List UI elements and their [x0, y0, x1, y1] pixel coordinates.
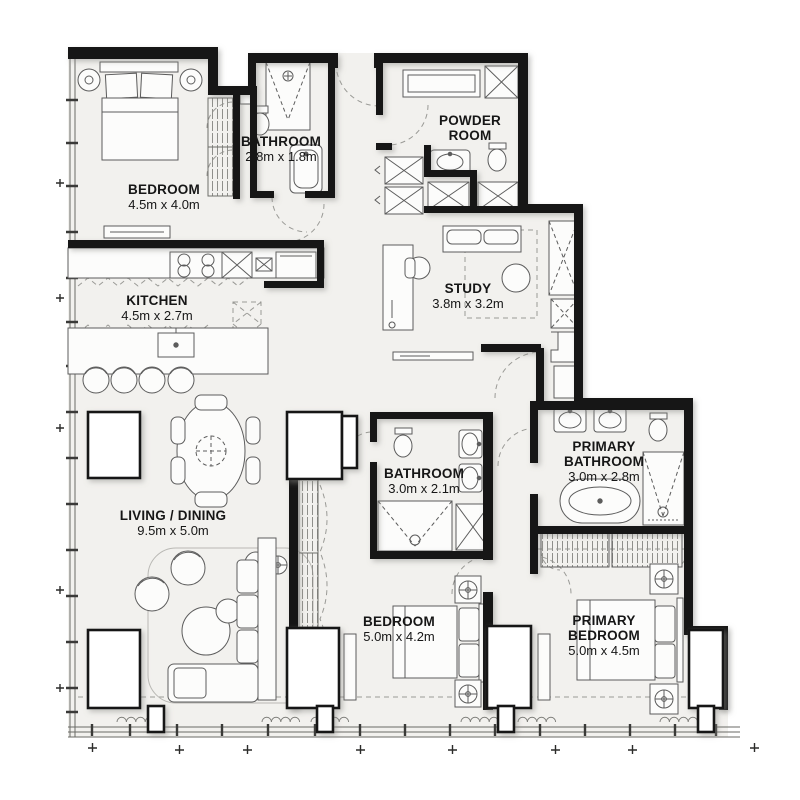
room-label-bathroom-1: BATHROOM 2.8m x 1.8m — [241, 134, 321, 164]
room-label-primary-bedroom: PRIMARY BEDROOM 5.0m x 4.5m — [568, 613, 640, 658]
room-dims: 5.0m x 4.2m — [363, 629, 435, 644]
room-dims: 3.8m x 3.2m — [432, 296, 504, 311]
room-name: PRIMARY — [568, 613, 640, 628]
room-label-primary-bathroom: PRIMARY BATHROOM 3.0m x 2.8m — [564, 439, 644, 484]
room-label-bedroom-1: BEDROOM 4.5m x 4.0m — [128, 182, 200, 212]
room-name: BATHROOM — [564, 454, 644, 469]
room-label-bathroom-2: BATHROOM 3.0m x 2.1m — [384, 466, 464, 496]
room-name: BATHROOM — [384, 466, 464, 481]
room-name: KITCHEN — [121, 293, 193, 308]
room-name: ROOM — [439, 128, 501, 143]
room-name: LIVING / DINING — [120, 508, 227, 523]
room-dims: 3.0m x 2.1m — [384, 481, 464, 496]
room-dims: 2.8m x 1.8m — [241, 149, 321, 164]
room-name: BEDROOM — [128, 182, 200, 197]
room-label-powder-room: POWDER ROOM — [439, 113, 501, 143]
room-dims: 9.5m x 5.0m — [120, 523, 227, 538]
room-label-study: STUDY 3.8m x 3.2m — [432, 281, 504, 311]
room-name: PRIMARY — [564, 439, 644, 454]
room-name: POWDER — [439, 113, 501, 128]
room-dims: 4.5m x 2.7m — [121, 308, 193, 323]
room-name: BEDROOM — [363, 614, 435, 629]
floor-plan-drawing — [0, 0, 800, 800]
room-name: STUDY — [432, 281, 504, 296]
room-label-living-dining: LIVING / DINING 9.5m x 5.0m — [120, 508, 227, 538]
room-label-kitchen: KITCHEN 4.5m x 2.7m — [121, 293, 193, 323]
room-dims: 3.0m x 2.8m — [564, 469, 644, 484]
room-label-bedroom-2: BEDROOM 5.0m x 4.2m — [363, 614, 435, 644]
room-name: BEDROOM — [568, 628, 640, 643]
room-name: BATHROOM — [241, 134, 321, 149]
room-dims: 5.0m x 4.5m — [568, 643, 640, 658]
floor-plan: BEDROOM 4.5m x 4.0m BATHROOM 2.8m x 1.8m… — [0, 0, 800, 800]
room-dims: 4.5m x 4.0m — [128, 197, 200, 212]
